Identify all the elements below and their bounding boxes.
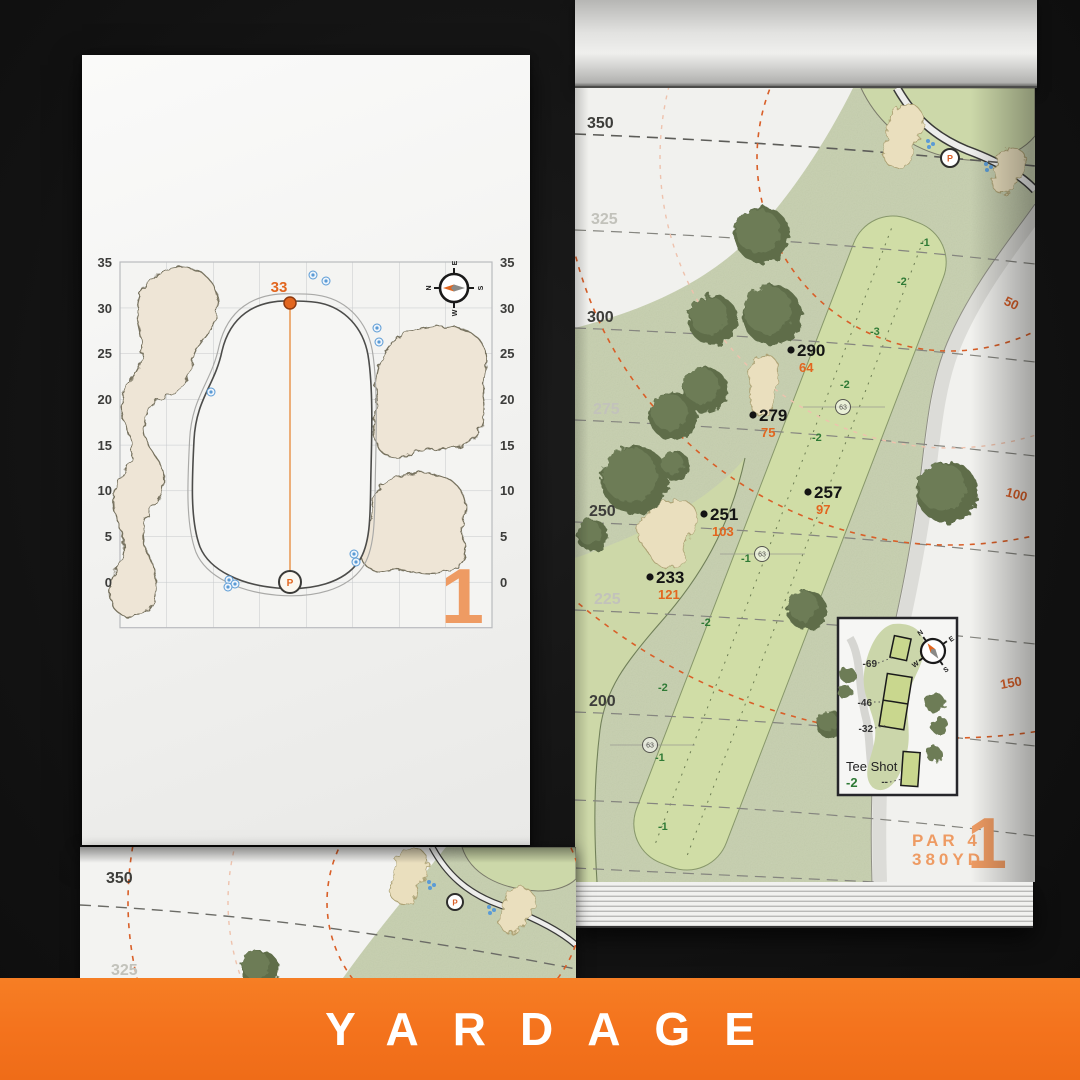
sprinkler-dot [207, 388, 215, 396]
tree [688, 295, 738, 345]
svg-text:279: 279 [759, 406, 787, 425]
tee-marker-label: -46 [858, 698, 873, 709]
tee-shot-elevation: -2 [846, 775, 858, 790]
axis-label: 0 [500, 575, 507, 590]
svg-text:63: 63 [758, 552, 766, 559]
tree [660, 451, 690, 481]
axis-labels-right: 35 30 25 20 15 10 5 0 [500, 255, 514, 590]
sprinkler-dot [352, 558, 360, 566]
axis-label: 5 [105, 529, 112, 544]
axis-label: 25 [98, 346, 112, 361]
svg-text:290: 290 [797, 341, 825, 360]
svg-text:251: 251 [710, 505, 738, 524]
tree [576, 519, 608, 551]
axis-label: 30 [500, 301, 514, 316]
page-stack-edge [575, 882, 1033, 928]
compass-e: E [452, 260, 459, 265]
tee-marker-label: -32 [859, 724, 874, 735]
axis-label: 15 [500, 438, 514, 453]
yardage-poster: { "banner": { "label": "YARDAGE", "bg_co… [0, 0, 1080, 1080]
compass-n: N [426, 285, 433, 290]
hole-map-booklet: 50 100 150 [575, 0, 1037, 926]
elevation-label: -2 [897, 276, 907, 288]
svg-text:121: 121 [658, 587, 680, 602]
hole-number: 1 [967, 804, 1007, 882]
next-hole-map-fragment: P 350 325 [80, 847, 576, 978]
axis-label: 5 [500, 529, 507, 544]
pin-letter: P [947, 154, 953, 164]
sprinkler-dot [224, 583, 232, 591]
green-front-dot [284, 297, 296, 309]
banner-title: YARDAGE [291, 1002, 789, 1056]
yardage-banner: YARDAGE [0, 978, 1080, 1080]
tee-shot-inset: -69 -46 -32 -- Tee Shot -2 N E S W [838, 616, 969, 795]
hole-map: 50 100 150 [575, 88, 1035, 882]
pin-distance-label: 33 [271, 279, 288, 296]
elevation-label: -1 [741, 553, 751, 565]
distance-label-275: 275 [593, 401, 620, 418]
pin-icon: P [447, 894, 463, 910]
tee-marker-label: -69 [863, 659, 878, 670]
pin-icon: P [279, 571, 301, 593]
distance-label-325: 325 [591, 211, 618, 228]
svg-text:63: 63 [839, 405, 847, 412]
svg-text:97: 97 [816, 502, 830, 517]
elevation-label: -2 [840, 379, 850, 391]
tee-shot-title: Tee Shot [846, 759, 898, 774]
axis-label: 10 [98, 483, 112, 498]
green-detail-page: 33 P 35 30 25 20 15 10 5 0 35 30 25 20 1… [82, 55, 530, 845]
svg-text:103: 103 [712, 524, 734, 539]
svg-text:63: 63 [646, 743, 654, 750]
tree [734, 207, 790, 263]
distance-label-325: 325 [111, 962, 138, 978]
tree [742, 285, 802, 345]
pin-icon: P [941, 149, 959, 167]
distance-label-350: 350 [587, 115, 614, 132]
svg-text:233: 233 [656, 568, 684, 587]
svg-text:75: 75 [761, 425, 775, 440]
axis-label: 0 [105, 575, 112, 590]
axis-label: 25 [500, 346, 514, 361]
distance-label-350: 350 [106, 870, 133, 887]
axis-label: 35 [500, 255, 514, 270]
next-hole-page-fragment: P 350 325 [80, 847, 576, 978]
sprinkler-dot [322, 277, 330, 285]
axis-label: 15 [98, 438, 112, 453]
sprinkler-dot [373, 324, 381, 332]
bunker-right-upper [374, 326, 487, 457]
sprinkler-dot [350, 550, 358, 558]
axis-label: 20 [98, 392, 112, 407]
compass-s: S [478, 285, 485, 290]
elevation-label: -3 [870, 326, 880, 338]
tee-box-back [890, 636, 911, 661]
green-detail-map: 33 P 35 30 25 20 15 10 5 0 35 30 25 20 1… [82, 55, 530, 845]
axis-label: 20 [500, 392, 514, 407]
tree [649, 392, 697, 440]
axis-labels-left: 35 30 25 20 15 10 5 0 [98, 255, 112, 590]
page-curl [575, 0, 1037, 88]
elevation-label: -1 [658, 821, 668, 833]
axis-label: 10 [500, 483, 514, 498]
distance-label-300: 300 [587, 309, 614, 326]
distance-label-250: 250 [589, 503, 616, 520]
tee-marker-label: -- [881, 777, 888, 788]
pin-letter: P [287, 578, 294, 589]
elevation-label: -2 [658, 682, 668, 694]
svg-text:64: 64 [799, 360, 814, 375]
elevation-label: -2 [812, 432, 822, 444]
elevation-label: -1 [920, 237, 930, 249]
distance-label-200: 200 [589, 693, 616, 710]
tree [916, 461, 978, 523]
pin-letter: P [452, 899, 458, 908]
elevation-label: -2 [701, 617, 711, 629]
distance-label-225: 225 [594, 591, 621, 608]
svg-text:257: 257 [814, 483, 842, 502]
sprinkler-dot [309, 271, 317, 279]
sprinkler-dot [375, 338, 383, 346]
hole-number: 1 [441, 552, 484, 640]
axis-label: 35 [98, 255, 112, 270]
tee-box-front [901, 751, 920, 786]
compass-w: W [452, 309, 459, 316]
tree [787, 590, 827, 630]
elevation-label: -1 [655, 752, 665, 764]
axis-label: 30 [98, 301, 112, 316]
